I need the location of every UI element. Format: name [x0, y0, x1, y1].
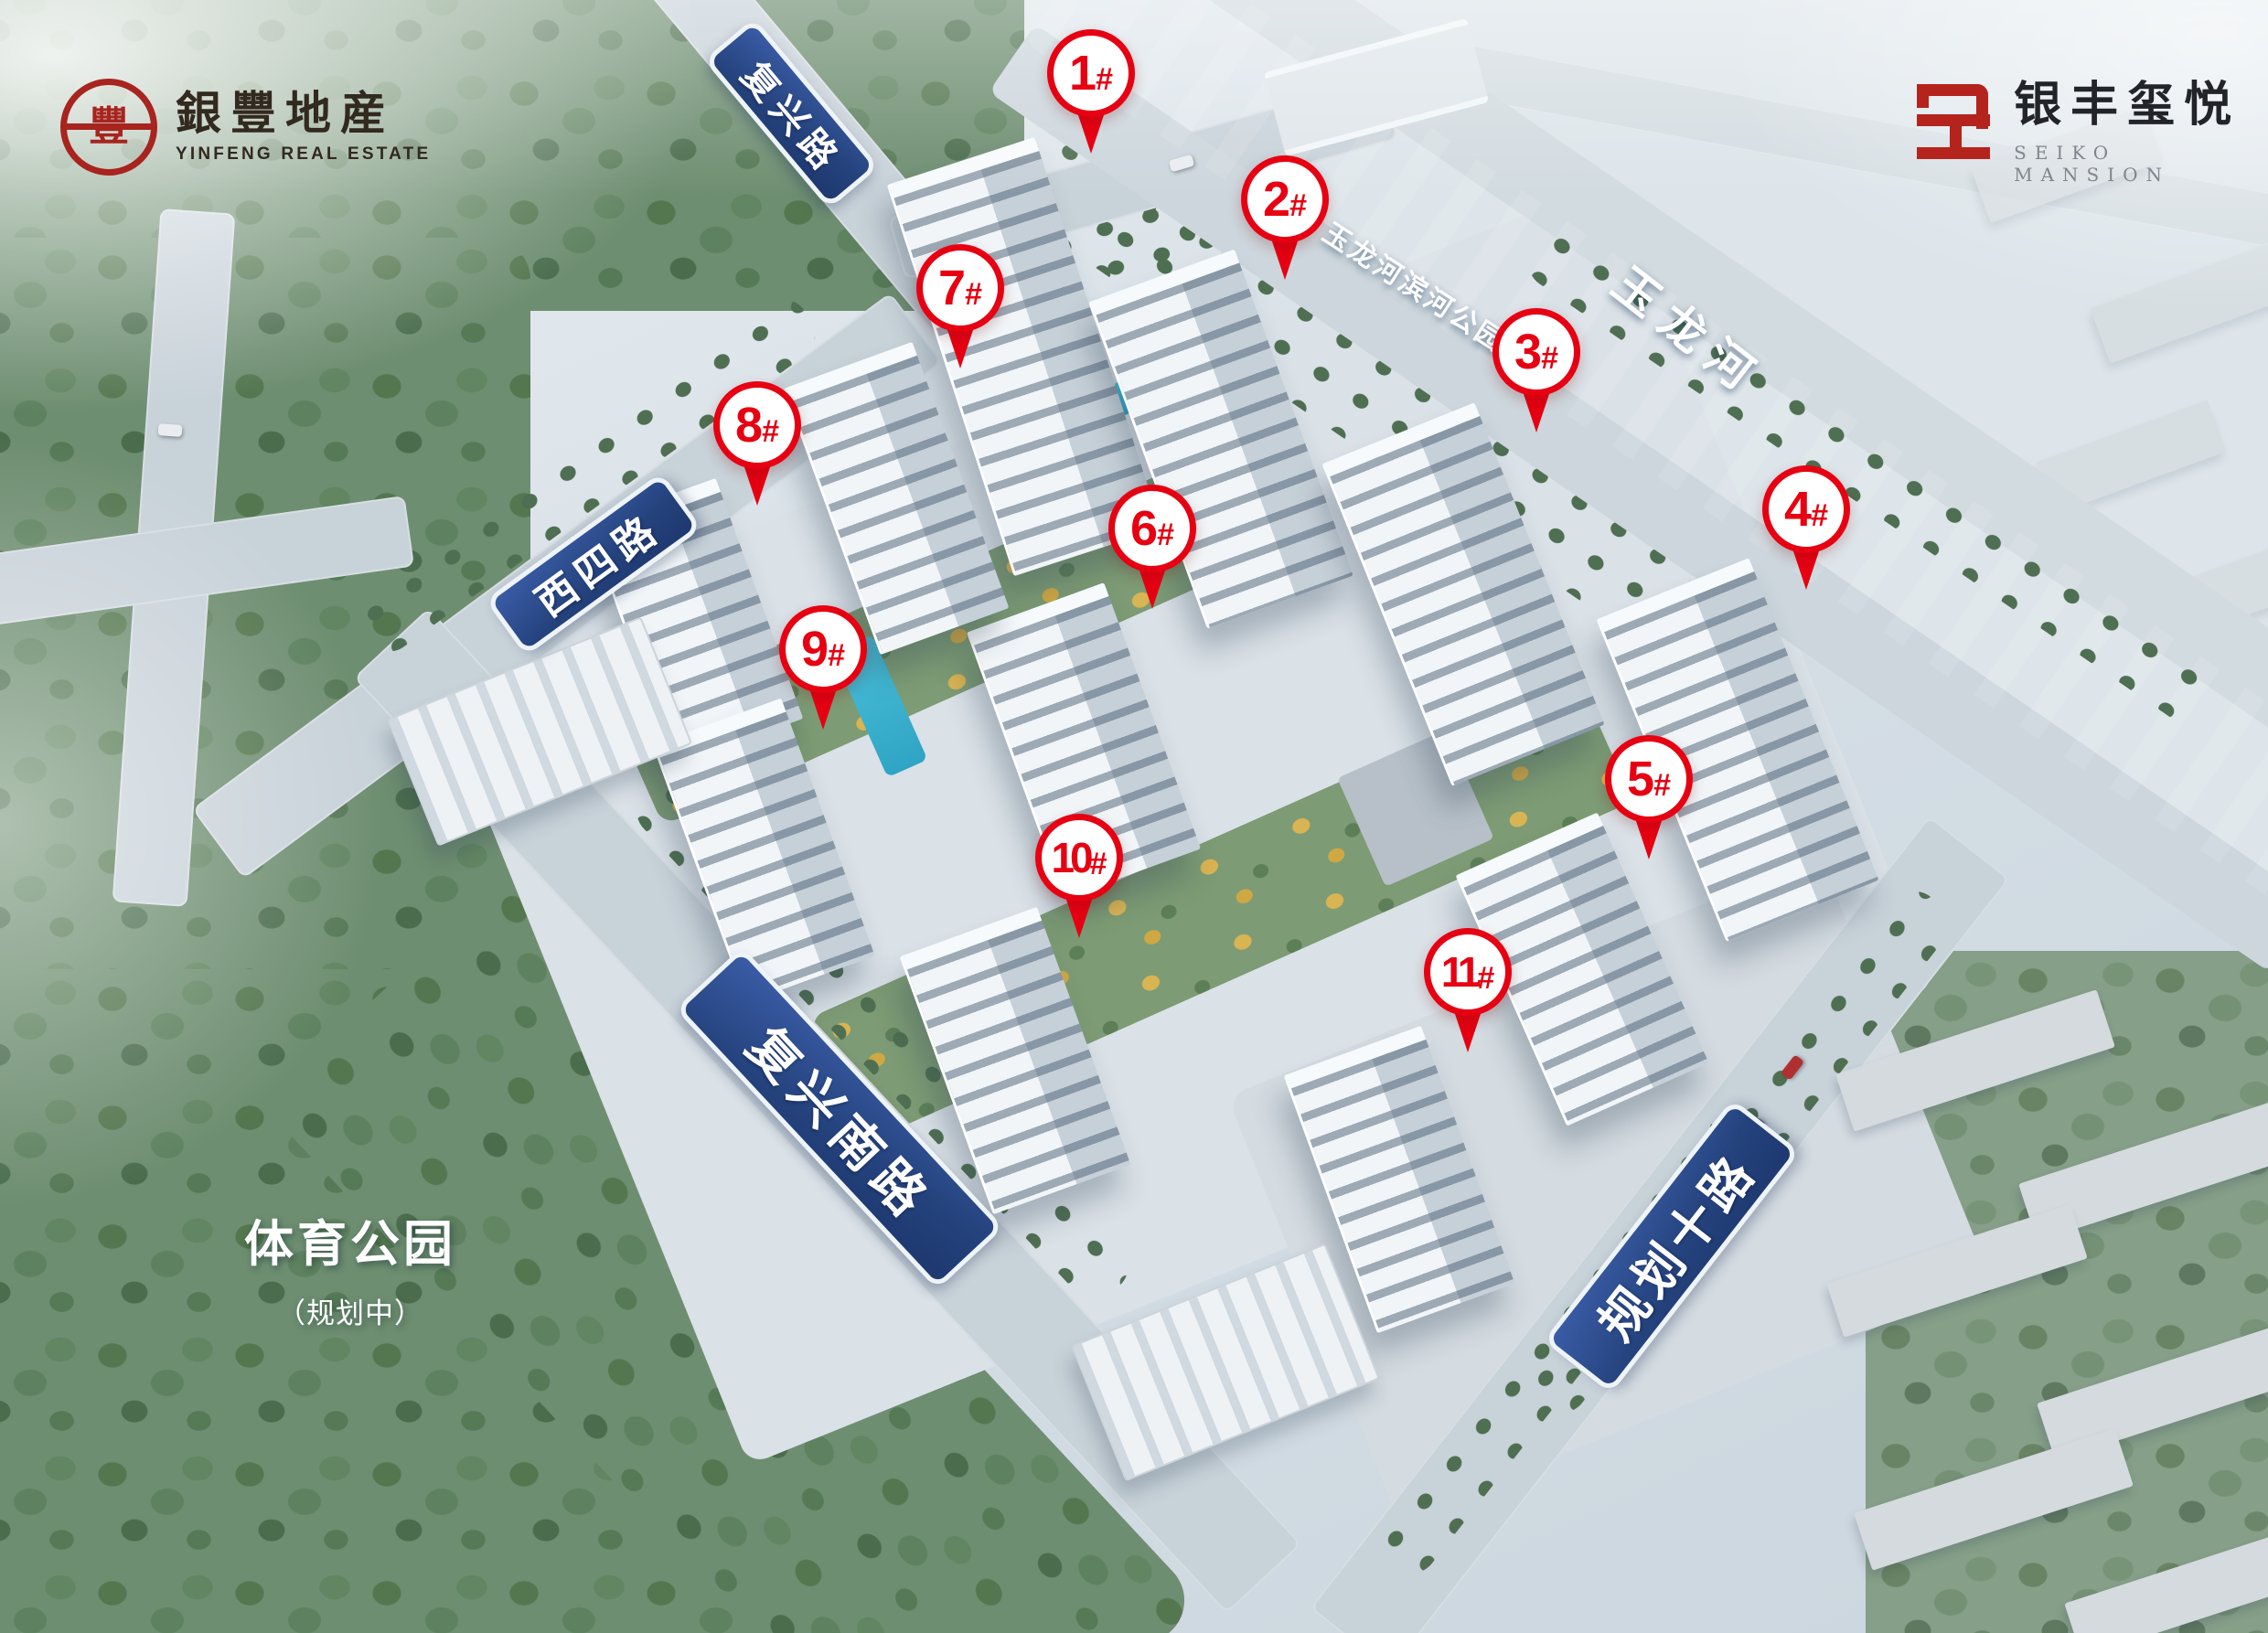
building-marker-9[interactable]: 9# [779, 605, 867, 693]
marker-number: 7 [938, 263, 964, 313]
developer-logo: 豐 銀豐地産 YINFENG REAL ESTATE [60, 79, 431, 176]
yinfeng-seal-icon: 豐 [60, 79, 157, 176]
marker-hash: # [965, 279, 982, 310]
marker-hash: # [1653, 770, 1671, 801]
marker-number: 4 [1784, 485, 1810, 534]
marker-circle: 6# [1108, 485, 1196, 572]
marker-hash: # [1096, 64, 1113, 95]
marker-number: 11 [1441, 951, 1477, 993]
marker-number: 8 [735, 400, 761, 450]
marker-hash: # [828, 640, 845, 671]
marker-number: 1 [1069, 48, 1095, 98]
marker-number: 2 [1263, 175, 1289, 224]
sports-park-label: 体育公园 （规划中） [227, 1203, 474, 1331]
marker-circle: 10# [1035, 814, 1123, 902]
building-marker-5[interactable]: 5# [1605, 735, 1693, 823]
project-name-cn: 银丰玺悦 [2014, 80, 2268, 131]
building-marker-2[interactable]: 2# [1241, 155, 1329, 243]
marker-hash: # [1811, 500, 1828, 531]
building-marker-3[interactable]: 3# [1492, 308, 1580, 396]
marker-hash: # [762, 416, 779, 447]
marker-circle: 2# [1241, 155, 1329, 243]
sports-park-title: 体育公园 [227, 1203, 474, 1275]
marker-circle: 3# [1492, 308, 1580, 396]
marker-circle: 8# [713, 381, 801, 469]
masterplan-scene: 复兴路西四路复兴南路规划十路 玉龙河玉龙河滨河公园 体育公园 （规划中） 1#2… [0, 0, 2268, 1633]
building-marker-11[interactable]: 11# [1424, 928, 1512, 1016]
developer-name-en: YINFENG REAL ESTATE [176, 144, 431, 165]
marker-hash: # [1289, 190, 1307, 221]
marker-circle: 5# [1605, 735, 1693, 823]
building-marker-4[interactable]: 4# [1762, 465, 1850, 553]
building-marker-6[interactable]: 6# [1108, 485, 1196, 572]
marker-circle: 1# [1047, 29, 1135, 117]
project-logo: 银丰玺悦 SEIKO MANSION [1917, 80, 2268, 186]
marker-circle: 11# [1424, 928, 1512, 1016]
marker-number: 10 [1051, 837, 1088, 879]
marker-number: 3 [1514, 327, 1540, 377]
seiko-mansion-mark-icon [1917, 80, 1990, 159]
project-name-en: SEIKO MANSION [2014, 142, 2268, 186]
building-marker-10[interactable]: 10# [1035, 814, 1123, 902]
building-marker-7[interactable]: 7# [916, 244, 1004, 332]
marker-circle: 7# [916, 244, 1004, 332]
car [158, 423, 183, 437]
developer-name-cn: 銀豐地産 [176, 90, 431, 138]
marker-circle: 4# [1762, 465, 1850, 553]
seal-character: 豐 [89, 107, 129, 147]
marker-number: 6 [1130, 504, 1156, 553]
building-marker-1[interactable]: 1# [1047, 29, 1135, 117]
marker-number: 9 [801, 624, 827, 674]
marker-number: 5 [1627, 754, 1653, 804]
marker-hash: # [1090, 849, 1107, 880]
building-marker-8[interactable]: 8# [713, 381, 801, 469]
marker-circle: 9# [779, 605, 867, 693]
marker-hash: # [1157, 519, 1174, 550]
marker-hash: # [1541, 343, 1558, 374]
marker-hash: # [1477, 963, 1494, 994]
sports-park-subtitle: （规划中） [227, 1290, 474, 1331]
